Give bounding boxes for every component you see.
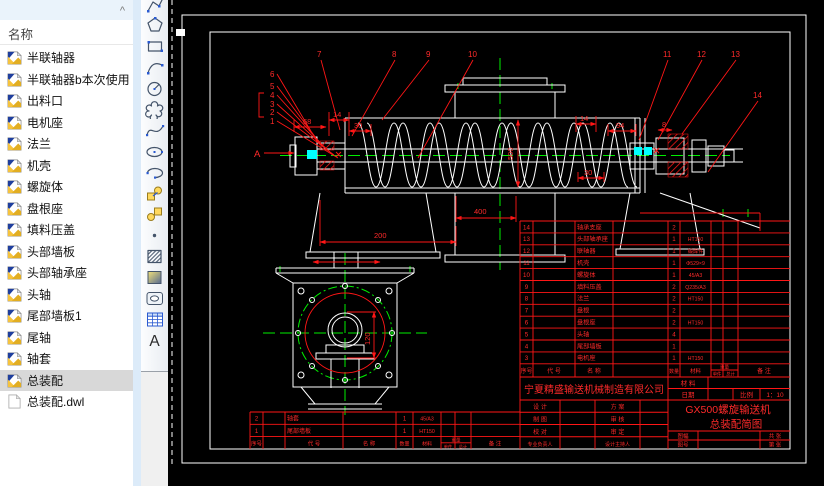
file-item[interactable]: 总装配.dwl xyxy=(0,391,133,413)
collapse-chevron-icon[interactable]: ^ xyxy=(120,6,125,17)
svg-text:尾部墙板: 尾部墙板 xyxy=(287,427,311,435)
svg-text:Q235/A3: Q235/A3 xyxy=(685,285,706,291)
svg-text:机壳: 机壳 xyxy=(577,259,589,267)
dwg-file-icon xyxy=(7,351,22,366)
svg-text:5: 5 xyxy=(525,331,529,338)
svg-text:螺旋体: 螺旋体 xyxy=(577,271,596,279)
svg-text:盘根: 盘根 xyxy=(577,307,589,315)
svg-text:14: 14 xyxy=(523,224,530,231)
svg-text:4: 4 xyxy=(672,331,676,338)
region-icon[interactable] xyxy=(141,287,168,308)
svg-text:备 注: 备 注 xyxy=(757,367,771,375)
svg-text:序号: 序号 xyxy=(251,440,263,448)
svg-text:6: 6 xyxy=(270,70,275,79)
svg-text:2: 2 xyxy=(672,296,676,303)
svg-text:Φ529×9: Φ529×9 xyxy=(686,261,705,267)
point-icon[interactable] xyxy=(141,224,168,245)
file-name: 总装配 xyxy=(27,372,63,389)
svg-text:1: 1 xyxy=(403,429,407,435)
file-name: 盘根座 xyxy=(27,200,63,217)
svg-text:第 张: 第 张 xyxy=(769,441,782,449)
svg-text:11: 11 xyxy=(663,50,672,59)
svg-text:HT150: HT150 xyxy=(688,356,704,362)
file-item[interactable]: 头轴 xyxy=(0,284,133,306)
file-name: 机壳 xyxy=(27,157,51,174)
svg-text:名 称: 名 称 xyxy=(587,367,601,375)
svg-text:联轴器: 联轴器 xyxy=(577,247,596,255)
svg-text:备 注: 备 注 xyxy=(489,440,502,448)
drawing-title: 总装配简图 xyxy=(710,418,763,431)
file-panel-header-band: ^ xyxy=(0,0,133,20)
dwg-file-icon xyxy=(7,330,22,345)
svg-text:轴套: 轴套 xyxy=(287,415,299,423)
svg-text:2: 2 xyxy=(672,308,676,315)
svg-text:HT150: HT150 xyxy=(688,321,704,327)
file-item[interactable]: 头部墙板 xyxy=(0,241,133,263)
drawing-area: 7 8 9 10 11 12 13 14 6 5 4 3 2 1 A 68 14… xyxy=(168,0,824,486)
svg-text:制 图: 制 图 xyxy=(533,416,547,424)
draw-toolbar: A xyxy=(141,0,169,372)
svg-text:2: 2 xyxy=(270,108,275,117)
svg-text:10: 10 xyxy=(468,50,477,59)
bom-table-left: 2 轴套 1 45/A3 1 尾部墙板 1 HT150 序号 代 号 名 称 数… xyxy=(250,412,520,450)
svg-text:1: 1 xyxy=(255,429,259,435)
file-name: 尾部墙板1 xyxy=(27,307,82,324)
svg-text:电机座: 电机座 xyxy=(577,354,596,362)
revision-cloud-icon[interactable] xyxy=(141,98,168,119)
svg-text:14: 14 xyxy=(580,114,588,123)
svg-text:4: 4 xyxy=(270,91,275,100)
svg-text:共 张: 共 张 xyxy=(769,432,782,440)
toolbar-empty-area xyxy=(141,372,169,486)
dwg-file-icon xyxy=(7,72,22,87)
svg-text:13: 13 xyxy=(731,50,740,59)
cad-viewport[interactable]: 7 8 9 10 11 12 13 14 6 5 4 3 2 1 A 68 14… xyxy=(168,0,824,486)
svg-text:HT150: HT150 xyxy=(419,429,435,435)
file-name: 头轴 xyxy=(27,286,51,303)
file-item[interactable]: 螺旋体 xyxy=(0,176,133,198)
svg-text:45/A3: 45/A3 xyxy=(689,273,703,279)
file-item[interactable]: 半联轴器b本次使用 xyxy=(0,69,133,91)
panel-splitter[interactable] xyxy=(133,0,141,486)
svg-text:填料压盖: 填料压盖 xyxy=(577,283,602,291)
file-item[interactable]: 填料压盖 xyxy=(0,219,133,241)
multiline-text-icon[interactable]: A xyxy=(141,329,168,350)
dwg-file-icon xyxy=(7,222,22,237)
svg-text:比例: 比例 xyxy=(740,390,753,399)
svg-text:7: 7 xyxy=(525,308,529,315)
svg-text:45/A3: 45/A3 xyxy=(420,417,434,423)
dwl-file-icon xyxy=(7,394,22,409)
polygon-icon[interactable] xyxy=(141,14,168,35)
svg-text:1: 1 xyxy=(672,260,676,267)
circle-icon[interactable] xyxy=(141,77,168,98)
rectangle-icon[interactable] xyxy=(141,35,168,56)
arc-icon[interactable] xyxy=(141,56,168,77)
svg-text:11: 11 xyxy=(523,260,530,267)
svg-text:数量: 数量 xyxy=(399,441,409,448)
file-name: 法兰 xyxy=(27,135,51,152)
dwg-file-icon xyxy=(7,158,22,173)
svg-text:总计: 总计 xyxy=(726,371,735,378)
bom-table: 14轴承支座2 13头部轴承座1HT150 12联轴器1锻焊件 11机壳1Φ52… xyxy=(520,223,770,377)
make-block-icon[interactable] xyxy=(141,203,168,224)
viewport-grip[interactable] xyxy=(176,29,185,36)
file-item[interactable]: 尾轴 xyxy=(0,327,133,349)
svg-text:材 料: 材 料 xyxy=(681,379,696,388)
svg-text:400: 400 xyxy=(474,207,487,216)
svg-text:设 计: 设 计 xyxy=(533,403,547,411)
svg-text:8: 8 xyxy=(392,50,397,59)
svg-text:单件: 单件 xyxy=(444,443,452,450)
dwg-file-icon xyxy=(7,93,22,108)
svg-text:轴承支座: 轴承支座 xyxy=(577,223,602,231)
svg-text:2: 2 xyxy=(255,417,259,423)
svg-text:7: 7 xyxy=(317,50,322,59)
file-name: 尾轴 xyxy=(27,329,51,346)
file-item[interactable]: 机壳 xyxy=(0,155,133,177)
svg-text:材料: 材料 xyxy=(422,441,432,448)
svg-text:A: A xyxy=(149,333,160,350)
insert-block-icon[interactable] xyxy=(141,182,168,203)
svg-text:重量: 重量 xyxy=(452,437,461,444)
file-name: 填料压盖 xyxy=(27,221,75,238)
svg-text:12: 12 xyxy=(523,248,530,255)
file-name: 总装配.dwl xyxy=(27,393,84,410)
svg-text:2: 2 xyxy=(672,224,676,231)
svg-text:方 案: 方 案 xyxy=(611,403,625,411)
dwg-file-icon xyxy=(7,50,22,65)
svg-text:HT150: HT150 xyxy=(688,237,704,243)
side-view xyxy=(290,78,760,262)
svg-text:8: 8 xyxy=(525,296,529,303)
dwg-file-icon xyxy=(7,265,22,280)
svg-text:校 对: 校 对 xyxy=(533,428,547,436)
table-icon[interactable] xyxy=(141,308,168,329)
svg-text:盘根座: 盘根座 xyxy=(577,319,596,327)
svg-text:6: 6 xyxy=(525,320,529,327)
svg-text:9: 9 xyxy=(525,284,529,291)
svg-text:1: 1 xyxy=(403,417,407,423)
svg-text:锻焊件: 锻焊件 xyxy=(688,247,704,255)
svg-text:9: 9 xyxy=(426,50,431,59)
file-name: 半联轴器b本次使用 xyxy=(27,71,130,88)
svg-text:2: 2 xyxy=(672,320,676,327)
svg-text:13: 13 xyxy=(523,236,530,243)
name-column-header[interactable]: 名称 xyxy=(0,20,133,45)
svg-text:代 号: 代 号 xyxy=(547,367,561,375)
scale-value: 1：10 xyxy=(766,392,784,399)
svg-text:设计主持人: 设计主持人 xyxy=(605,441,630,448)
spline-icon[interactable] xyxy=(141,119,168,140)
svg-text:重量: 重量 xyxy=(720,364,729,371)
svg-text:代 号: 代 号 xyxy=(308,440,321,448)
svg-text:尾部墙板: 尾部墙板 xyxy=(577,342,602,350)
dwg-file-icon xyxy=(7,287,22,302)
file-item[interactable]: 盘根座 xyxy=(0,198,133,220)
svg-text:单件: 单件 xyxy=(713,371,722,378)
company-name: 宁夏精盛输送机械制造有限公司 xyxy=(524,383,664,396)
file-item-selected[interactable]: 总装配 xyxy=(0,370,133,392)
svg-text:12: 12 xyxy=(697,50,706,59)
dwg-file-icon xyxy=(7,136,22,151)
svg-text:2: 2 xyxy=(672,284,676,291)
file-name: 头部墙板 xyxy=(27,243,75,260)
section-label: A xyxy=(254,149,261,160)
svg-text:68: 68 xyxy=(303,117,311,126)
svg-text:14: 14 xyxy=(753,91,762,100)
file-item[interactable]: 尾部墙板1 xyxy=(0,305,133,327)
file-panel: ^ 名称 半联轴器 半联轴器b本次使用 出料口 电机座 xyxy=(0,0,133,486)
dwg-file-icon xyxy=(7,373,22,388)
file-name: 轴套 xyxy=(27,350,51,367)
svg-text:审 定: 审 定 xyxy=(611,428,625,436)
ellipse-icon[interactable] xyxy=(141,140,168,161)
svg-text:500: 500 xyxy=(506,147,515,160)
svg-text:HT150: HT150 xyxy=(688,297,704,303)
dwg-file-icon xyxy=(7,244,22,259)
file-item[interactable]: 轴套 xyxy=(0,348,133,370)
hatch-icon[interactable] xyxy=(141,245,168,266)
svg-text:数量: 数量 xyxy=(669,368,679,375)
file-item[interactable]: 头部轴承座 xyxy=(0,262,133,284)
dwg-file-icon xyxy=(7,179,22,194)
ellipse-arc-icon[interactable] xyxy=(141,161,168,182)
dwg-file-icon xyxy=(7,115,22,130)
svg-text:序号: 序号 xyxy=(520,367,532,375)
svg-text:专业负责人: 专业负责人 xyxy=(527,441,552,448)
dwg-file-icon xyxy=(7,201,22,216)
file-name: 螺旋体 xyxy=(27,178,63,195)
file-name: 电机座 xyxy=(27,114,63,131)
cad-application-window: ^ 名称 半联轴器 半联轴器b本次使用 出料口 电机座 xyxy=(0,0,824,486)
svg-text:8: 8 xyxy=(662,120,666,129)
product-title: GX500螺旋输送机 xyxy=(685,403,771,416)
polyline-icon[interactable] xyxy=(141,0,168,14)
svg-text:4: 4 xyxy=(525,343,529,350)
svg-text:10: 10 xyxy=(523,272,530,279)
file-list: 半联轴器 半联轴器b本次使用 出料口 电机座 法兰 机壳 xyxy=(0,47,133,413)
svg-text:名 称: 名 称 xyxy=(363,440,376,448)
svg-text:1: 1 xyxy=(672,343,676,350)
svg-text:1: 1 xyxy=(672,355,676,362)
file-item[interactable]: 法兰 xyxy=(0,133,133,155)
svg-text:1: 1 xyxy=(270,117,275,126)
file-name: 头部轴承座 xyxy=(27,264,87,281)
svg-text:头部轴承座: 头部轴承座 xyxy=(577,235,608,243)
svg-text:3: 3 xyxy=(525,355,529,362)
file-item[interactable]: 电机座 xyxy=(0,112,133,134)
svg-text:5: 5 xyxy=(270,82,275,91)
file-item[interactable]: 半联轴器 xyxy=(0,47,133,69)
svg-text:200: 200 xyxy=(374,231,387,240)
svg-text:审 核: 审 核 xyxy=(611,416,625,424)
svg-text:法兰: 法兰 xyxy=(577,295,589,303)
svg-text:1: 1 xyxy=(672,236,676,243)
svg-text:日期: 日期 xyxy=(682,391,696,399)
svg-text:图号: 图号 xyxy=(677,441,689,449)
file-name: 半联轴器 xyxy=(27,49,75,66)
svg-text:头轴: 头轴 xyxy=(577,330,589,338)
file-name: 出料口 xyxy=(27,92,63,109)
svg-text:14: 14 xyxy=(333,110,341,119)
svg-text:30: 30 xyxy=(354,121,362,130)
svg-text:1: 1 xyxy=(672,248,676,255)
file-item[interactable]: 出料口 xyxy=(0,90,133,112)
svg-text:材料: 材料 xyxy=(690,367,702,375)
svg-text:总计: 总计 xyxy=(459,443,467,450)
svg-text:30: 30 xyxy=(584,168,592,177)
svg-text:1: 1 xyxy=(672,272,676,279)
dwg-file-icon xyxy=(7,308,22,323)
svg-text:94: 94 xyxy=(616,121,624,130)
gradient-icon[interactable] xyxy=(141,266,168,287)
svg-text:图幅: 图幅 xyxy=(677,432,689,440)
svg-text:120: 120 xyxy=(363,332,372,345)
name-column-label: 名称 xyxy=(8,24,33,43)
